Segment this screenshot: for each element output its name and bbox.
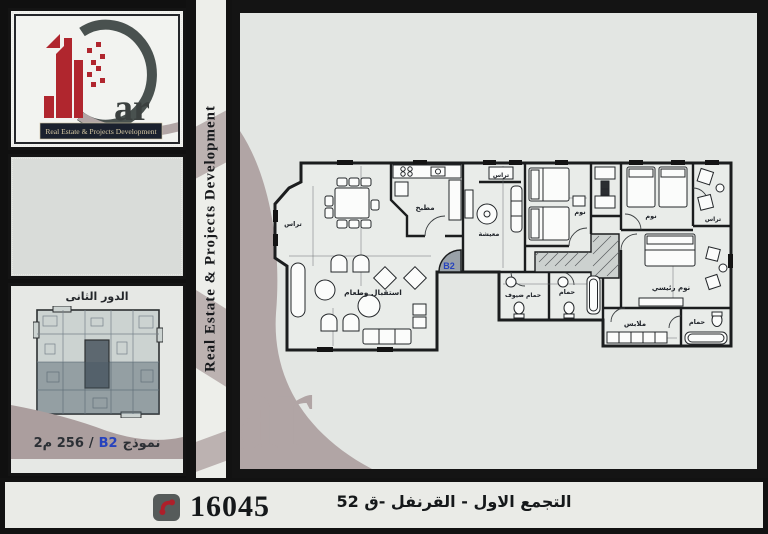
main-canvas: ar (240, 13, 757, 469)
model-code: B2 (99, 436, 118, 451)
footer: 16045 التجمع الاول - القرنفل -ق 52 (0, 478, 768, 534)
main-panel: ar (232, 0, 768, 478)
room-label-dressing: ملابس (624, 320, 646, 328)
building-logo-icon (44, 34, 105, 118)
location-text: التجمع الاول - القرنفل -ق 52 (265, 492, 643, 511)
room-label-bedroom-1: نوم (574, 208, 585, 216)
blank-panel (8, 154, 186, 279)
company-logo-icon: ar Real Estate & Projects Development (16, 16, 180, 144)
watermark-ar-text: ar (240, 355, 311, 467)
room-label-terrace-right: تراس (705, 216, 721, 223)
room-label-reception: استقبال وطعام (344, 288, 402, 297)
room-label-bedroom-2: نوم (645, 212, 656, 220)
brochure-page: ar Real Estate & Projects Development ال… (0, 0, 768, 534)
model-label: نموذج (123, 436, 161, 451)
logo-ar-text: ar (114, 87, 150, 129)
logo-tagline: Real Estate & Projects Development (45, 127, 157, 136)
side-strip-inner: Real Estate & Projects Development (196, 0, 226, 478)
floor-key-panel: الدور الثانى نموذج (8, 283, 186, 476)
room-label-kitchen: مطبخ (415, 204, 434, 212)
unit-tag: B2 (443, 261, 455, 271)
model-area: 256 م2 (34, 436, 84, 451)
side-brand-text: Real Estate & Projects Development (196, 0, 226, 478)
room-label-bath: حمام (559, 288, 576, 296)
floor-title: الدور الثانى (11, 290, 183, 303)
room-label-living: معيشة (479, 230, 500, 238)
room-label-terrace-top: تراس (493, 172, 509, 179)
footer-bar: 16045 التجمع الاول - القرنفل -ق 52 (5, 482, 763, 528)
phone-number: 16045 (190, 490, 270, 524)
logo-frame: ar Real Estate & Projects Development (14, 14, 180, 144)
caption-separator: / (89, 436, 94, 451)
room-label-terrace-left: تراس (284, 220, 302, 228)
room-label-master-bedroom: نوم رئيسي (652, 284, 691, 292)
room-label-master-bath: حمام (689, 318, 706, 326)
logo-panel: ar Real Estate & Projects Development (8, 8, 186, 150)
phone-group: 16045 (153, 490, 270, 524)
apartment-floor-plan: B2 (273, 158, 747, 358)
room-label-guest-bath: حمام ضيوف (505, 292, 541, 299)
side-strip: Real Estate & Projects Development (186, 0, 232, 478)
phone-icon (153, 494, 180, 521)
model-caption: نموذج B2 / 256 م2 (11, 436, 183, 451)
